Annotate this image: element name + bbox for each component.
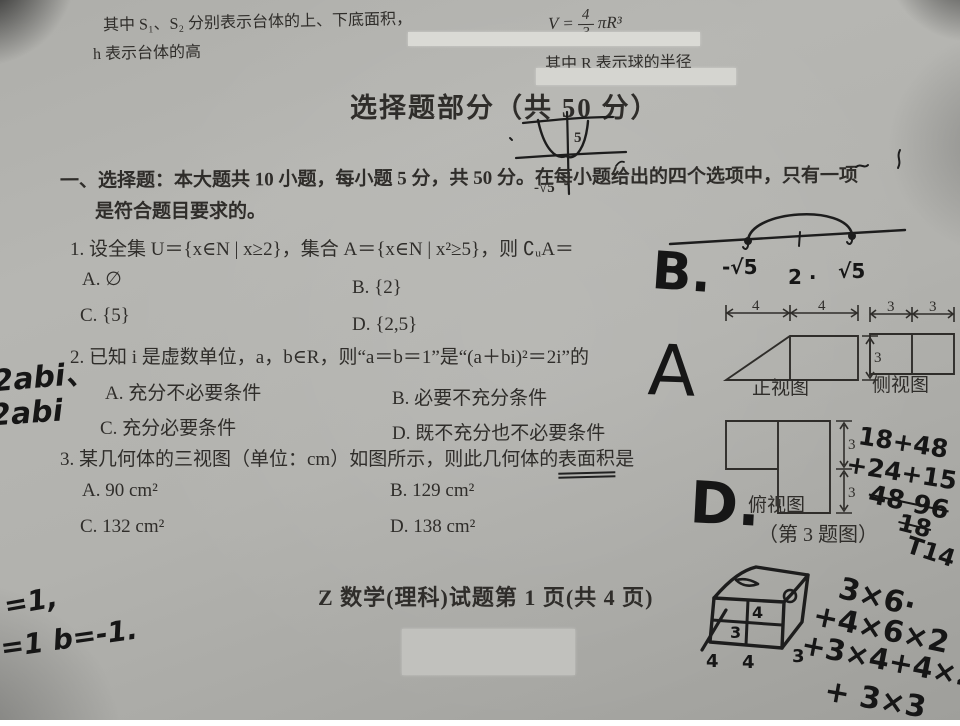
cube-dim-a: 4: [706, 651, 719, 672]
q3-option-a: A. 90 cm²: [82, 480, 158, 502]
redaction-block-mid: [536, 68, 736, 85]
redaction-block-bottom: [402, 629, 575, 675]
numberline-label-right: √5: [838, 259, 865, 283]
handwritten-numberline-sketch: -√5 2 · √5: [660, 196, 910, 296]
q3-stem: 3. 某几何体的三视图（单位：cm）如图所示，则此几何体的表面积是: [60, 444, 634, 478]
q2-handwritten-answer: A: [647, 329, 698, 413]
q2-stem: 2. 已知 i 是虚数单位，a，b∈R，则“a＝b＝1”是“(a＋bi)²＝2i…: [70, 342, 589, 369]
bottom-left-scribble-1: =1,: [2, 581, 61, 623]
frustum-formula-line2: h 表示台体的高: [93, 38, 201, 64]
side-dim-right: 3: [929, 299, 937, 315]
q3-stem-pre: 3. 某几何体的三视图（单位：cm）如图所示，则此几何体的: [60, 449, 558, 470]
q2-option-c: C. 充分必要条件: [100, 413, 236, 440]
exam-paper-photo: 其中 S₁、S₂ 分别表示台体的上、下底面积， h 表示台体的高 V = 4 3…: [0, 0, 960, 720]
front-dim-left: 4: [752, 298, 760, 314]
q1-stem: 1. 设全集 U＝{x∈N | x≥2}，集合 A＝{x∈N | x²≥5}，则…: [70, 234, 574, 261]
numberline-label-left: -√5: [722, 255, 758, 279]
q3-stem-post: 是: [615, 449, 634, 470]
front-dim-right: 4: [818, 298, 826, 314]
q3-option-d: D. 138 cm²: [390, 516, 475, 538]
redaction-block-top: [408, 32, 700, 46]
q3-option-c: C. 132 cm²: [80, 516, 164, 538]
intro-line2: 是符合题目要求的。: [95, 196, 266, 223]
side-view-diagram: 3 3: [862, 302, 960, 377]
frustum-formula-line1: 其中 S₁、S₂ 分别表示台体的上、下底面积，: [103, 5, 412, 35]
q1-option-d: D. {2,5}: [352, 314, 417, 336]
fraction-numerator: 4: [578, 8, 594, 25]
side-view-label: 侧视图: [872, 370, 929, 397]
formula-v: V =: [548, 14, 574, 33]
intro-line1: 一、选择题：本大题共 10 小题，每小题 5 分，共 50 分。在每小题给出的四…: [60, 160, 858, 193]
page-footer: Z 数学(理科)试题第 1 页(共 4 页): [318, 580, 653, 612]
q2-margin-scribble-2: 2abi: [0, 394, 64, 434]
q2-option-a: A. 充分不必要条件: [105, 378, 261, 405]
q1-option-a: A. ∅: [82, 268, 122, 291]
cube-calc-extra: T14: [903, 531, 959, 573]
formula-tail: πR³: [598, 13, 622, 32]
q1-option-c: C. {5}: [80, 305, 130, 327]
front-view-label: 正视图: [752, 373, 809, 400]
figure-caption: （第 3 题图）: [758, 518, 878, 547]
graph-label-inner: 5: [574, 130, 582, 146]
q3-option-b: B. 129 cm²: [390, 480, 474, 502]
top-view-label: 俯视图: [748, 490, 805, 517]
q3-stem-underlined: 表面积: [558, 443, 616, 478]
stray-pen-marks: [848, 145, 918, 190]
side-dim-left: 3: [887, 299, 895, 315]
q2-option-b: B. 必要不充分条件: [392, 383, 547, 410]
q1-option-b: B. {2}: [352, 277, 402, 299]
q2-option-d: D. 既不充分也不必要条件: [392, 418, 605, 445]
numberline-label-mid: 2 ·: [788, 265, 816, 289]
bottom-left-scribble-2: =1 b=-1.: [0, 613, 140, 665]
cube-dim-b: 4: [742, 652, 755, 673]
cube-dim-e: 4: [752, 603, 763, 622]
cube-dim-d: 3: [730, 623, 741, 642]
top-dim-lower: 3: [848, 485, 856, 501]
q2-margin-scribble-1: 2abi、: [0, 348, 97, 401]
